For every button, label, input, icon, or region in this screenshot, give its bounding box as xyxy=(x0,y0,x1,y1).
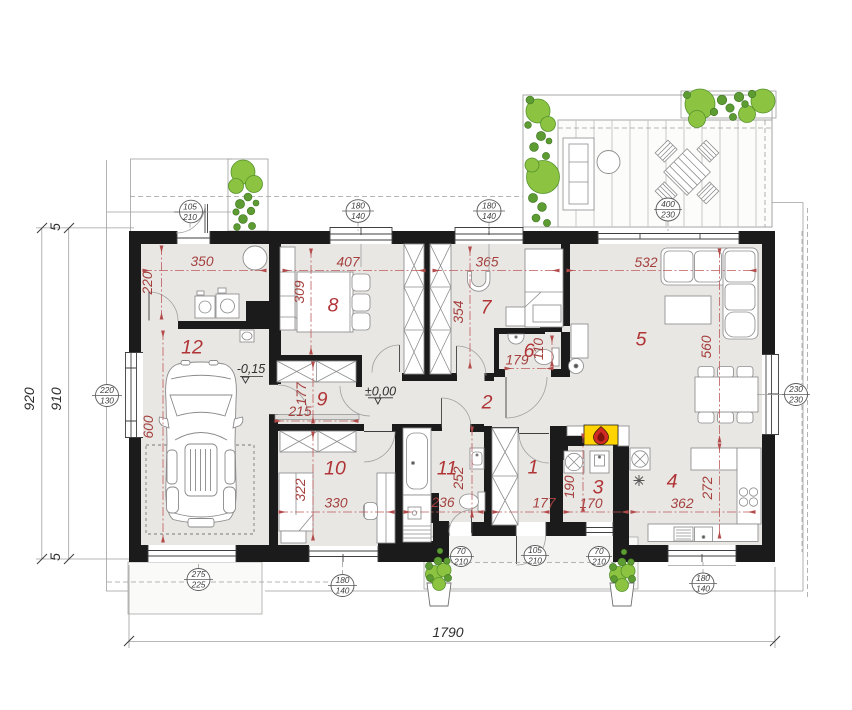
svg-text:275: 275 xyxy=(191,569,206,579)
svg-text:354: 354 xyxy=(451,300,466,323)
svg-text:70: 70 xyxy=(456,546,466,556)
svg-text:600: 600 xyxy=(141,415,156,438)
svg-text:180: 180 xyxy=(482,201,496,211)
svg-text:12: 12 xyxy=(181,337,203,359)
svg-text:230: 230 xyxy=(788,384,803,394)
svg-text:220: 220 xyxy=(140,271,155,295)
svg-text:230: 230 xyxy=(788,395,803,405)
svg-text:5: 5 xyxy=(47,223,63,231)
svg-text:560: 560 xyxy=(699,335,714,358)
svg-text:140: 140 xyxy=(482,211,496,221)
svg-text:6: 6 xyxy=(524,340,535,362)
svg-text:105: 105 xyxy=(528,545,542,555)
svg-text:140: 140 xyxy=(336,586,350,596)
svg-text:532: 532 xyxy=(634,255,657,270)
svg-text:177: 177 xyxy=(294,381,309,405)
svg-text:7: 7 xyxy=(481,297,493,319)
svg-text:230: 230 xyxy=(660,210,675,220)
svg-text:225: 225 xyxy=(191,580,206,590)
svg-text:177: 177 xyxy=(532,496,556,511)
svg-text:1790: 1790 xyxy=(432,624,463,640)
svg-text:140: 140 xyxy=(696,584,710,594)
svg-text:8: 8 xyxy=(328,295,339,317)
svg-text:140: 140 xyxy=(351,211,365,221)
svg-text:365: 365 xyxy=(475,255,498,270)
svg-text:3: 3 xyxy=(593,477,604,499)
svg-text:920: 920 xyxy=(21,387,37,411)
svg-text:210: 210 xyxy=(453,557,468,567)
svg-text:180: 180 xyxy=(351,201,365,211)
svg-text:105: 105 xyxy=(183,202,197,212)
svg-text:400: 400 xyxy=(661,199,675,209)
svg-text:1: 1 xyxy=(528,457,539,479)
svg-text:10: 10 xyxy=(324,458,346,480)
svg-text:322: 322 xyxy=(293,478,308,501)
svg-text:5: 5 xyxy=(47,553,63,561)
svg-text:4: 4 xyxy=(667,471,678,493)
svg-text:5: 5 xyxy=(636,329,647,351)
svg-text:180: 180 xyxy=(336,575,350,585)
svg-text:350: 350 xyxy=(190,254,213,269)
svg-text:236: 236 xyxy=(430,495,454,510)
svg-text:11: 11 xyxy=(437,458,457,480)
svg-text:210: 210 xyxy=(591,557,606,567)
svg-text:70: 70 xyxy=(594,546,604,556)
svg-text:130: 130 xyxy=(100,396,114,406)
svg-text:190: 190 xyxy=(562,475,577,498)
svg-text:-0,15: -0,15 xyxy=(237,362,266,376)
svg-text:±0,00: ±0,00 xyxy=(365,385,396,399)
svg-text:9: 9 xyxy=(317,389,328,411)
svg-text:210: 210 xyxy=(182,212,197,222)
svg-text:362: 362 xyxy=(670,496,693,511)
svg-text:180: 180 xyxy=(696,573,710,583)
svg-text:210: 210 xyxy=(527,556,542,566)
svg-text:220: 220 xyxy=(99,385,114,395)
svg-text:330: 330 xyxy=(324,496,347,511)
svg-text:309: 309 xyxy=(292,280,307,303)
svg-text:272: 272 xyxy=(700,476,715,500)
svg-text:910: 910 xyxy=(48,387,64,411)
svg-text:407: 407 xyxy=(336,255,360,270)
svg-text:2: 2 xyxy=(481,392,493,414)
